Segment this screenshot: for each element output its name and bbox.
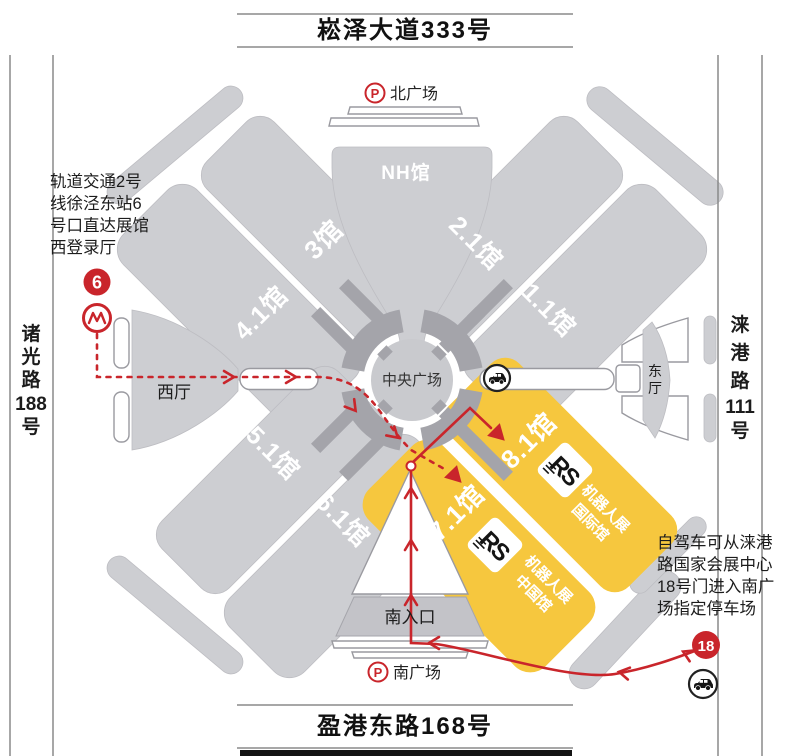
- gate-number: 18: [698, 638, 715, 655]
- east-hall-label-bottom: 厅: [648, 380, 662, 396]
- metro-exit-number: 6: [92, 273, 102, 293]
- svg-text:轨道交通2号: 轨道交通2号: [50, 172, 142, 191]
- bottom-bar: [240, 750, 572, 756]
- svg-text:光: 光: [20, 345, 40, 368]
- venue-access-map: 6 18 P P RS RS: [0, 0, 800, 756]
- map-canvas: 6 18 P P RS RS: [0, 0, 800, 756]
- west-door-upper: [114, 318, 129, 368]
- svg-text:线徐泾东站6: 线徐泾东站6: [50, 194, 142, 213]
- south-entrance-label: 南入口: [385, 608, 436, 627]
- svg-text:号口直达展馆: 号口直达展馆: [50, 216, 149, 235]
- svg-text:场指定停车场: 场指定停车场: [657, 599, 756, 618]
- hall-label-nh: NH馆: [381, 161, 430, 184]
- east-hall-label-top: 东: [648, 363, 662, 379]
- west-corridor: [240, 369, 318, 390]
- metro-exit-marker: 6: [84, 269, 111, 296]
- road-label-east: 涞 港 路 111 号: [725, 314, 755, 442]
- svg-text:18号门进入南广: 18号门进入南广: [657, 577, 774, 596]
- west-hall-label: 西厅: [157, 383, 191, 402]
- metro-logo-icon: [84, 305, 111, 332]
- svg-text:路: 路: [21, 368, 41, 391]
- svg-text:西登录厅: 西登录厅: [50, 238, 116, 257]
- svg-text:路国家会展中心: 路国家会展中心: [657, 555, 773, 574]
- north-entrance: [329, 107, 479, 126]
- svg-text:111: 111: [725, 397, 755, 418]
- parking-icon-north: P: [366, 84, 385, 103]
- svg-text:号: 号: [21, 416, 40, 438]
- svg-text:号: 号: [730, 420, 749, 442]
- south-plaza-label: 南广场: [393, 664, 441, 682]
- road-label-west: 诸 光 路 188 号: [15, 323, 47, 438]
- parking-symbol: P: [371, 86, 380, 101]
- car-icon-east: [484, 365, 510, 391]
- road-label-north: 崧泽大道333号: [317, 16, 493, 44]
- svg-text:涞: 涞: [730, 314, 749, 336]
- svg-text:诸: 诸: [21, 323, 40, 345]
- svg-text:港: 港: [730, 342, 750, 364]
- gate-18-marker: 18: [692, 631, 720, 659]
- north-plaza-label: 北广场: [390, 85, 438, 103]
- parking-icon-south: P: [369, 663, 388, 682]
- svg-text:188: 188: [15, 394, 47, 415]
- svg-text:路: 路: [730, 369, 750, 392]
- road-label-south: 盈港东路168号: [316, 712, 493, 740]
- svg-text:自驾车可从涞港: 自驾车可从涞港: [657, 533, 773, 552]
- west-door-lower: [114, 392, 129, 442]
- car-icon-southeast: [689, 670, 717, 698]
- central-plaza-label: 中央广场: [382, 372, 442, 389]
- route-junction-node: [407, 462, 416, 471]
- parking-symbol: P: [374, 665, 383, 680]
